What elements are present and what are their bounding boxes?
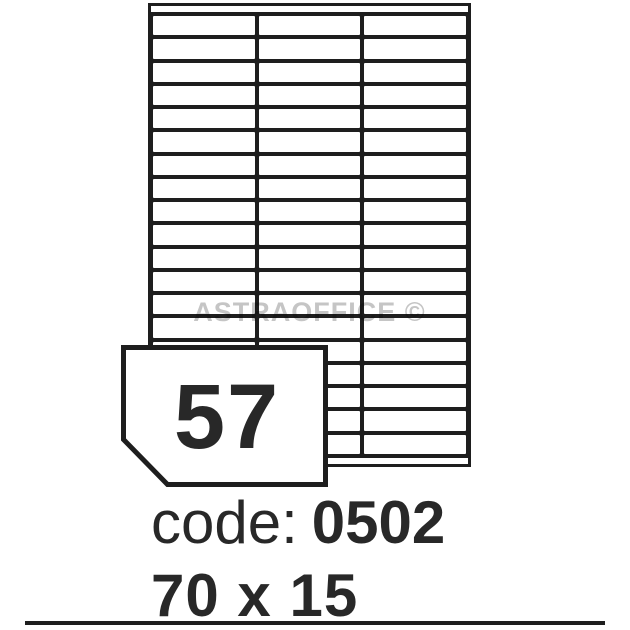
label-cell — [364, 132, 466, 151]
label-cell — [259, 132, 361, 151]
label-cell — [364, 16, 466, 35]
label-cell — [364, 342, 466, 361]
label-cell — [364, 411, 466, 430]
watermark-text: ASTRAOFFICE © — [148, 297, 471, 328]
label-cell — [153, 179, 255, 198]
label-cell — [153, 63, 255, 82]
code-value: 0502 — [312, 489, 445, 556]
label-cell — [153, 249, 255, 268]
label-cell — [364, 388, 466, 407]
label-cell — [364, 435, 466, 454]
label-cell — [153, 132, 255, 151]
label-cell — [364, 249, 466, 268]
label-cell — [153, 109, 255, 128]
label-cell — [364, 109, 466, 128]
label-cell — [259, 249, 361, 268]
label-cell — [153, 16, 255, 35]
label-cell — [364, 202, 466, 221]
product-code-line: code:0502 — [151, 493, 445, 553]
label-cell — [259, 109, 361, 128]
label-cell — [259, 156, 361, 175]
label-cell — [364, 272, 466, 291]
label-cell — [153, 202, 255, 221]
code-label: code: — [151, 489, 298, 556]
label-cell — [364, 86, 466, 105]
label-cell — [259, 202, 361, 221]
label-cell — [153, 39, 255, 58]
label-cell — [259, 272, 361, 291]
product-image: ASTRAOFFICE © 57 code:0502 70 x 15 — [0, 0, 630, 630]
label-cell — [153, 86, 255, 105]
label-cell — [364, 179, 466, 198]
label-cell — [364, 365, 466, 384]
label-cell — [259, 179, 361, 198]
label-count-value: 57 — [123, 347, 323, 481]
label-cell — [259, 63, 361, 82]
label-cell — [153, 272, 255, 291]
label-cell — [364, 39, 466, 58]
label-cell — [364, 225, 466, 244]
label-cell — [364, 156, 466, 175]
label-cell — [153, 156, 255, 175]
label-cell — [153, 225, 255, 244]
label-cell — [259, 39, 361, 58]
label-cell — [364, 63, 466, 82]
label-cell — [259, 86, 361, 105]
label-size: 70 x 15 — [151, 566, 358, 626]
label-cell — [259, 16, 361, 35]
label-cell — [259, 225, 361, 244]
